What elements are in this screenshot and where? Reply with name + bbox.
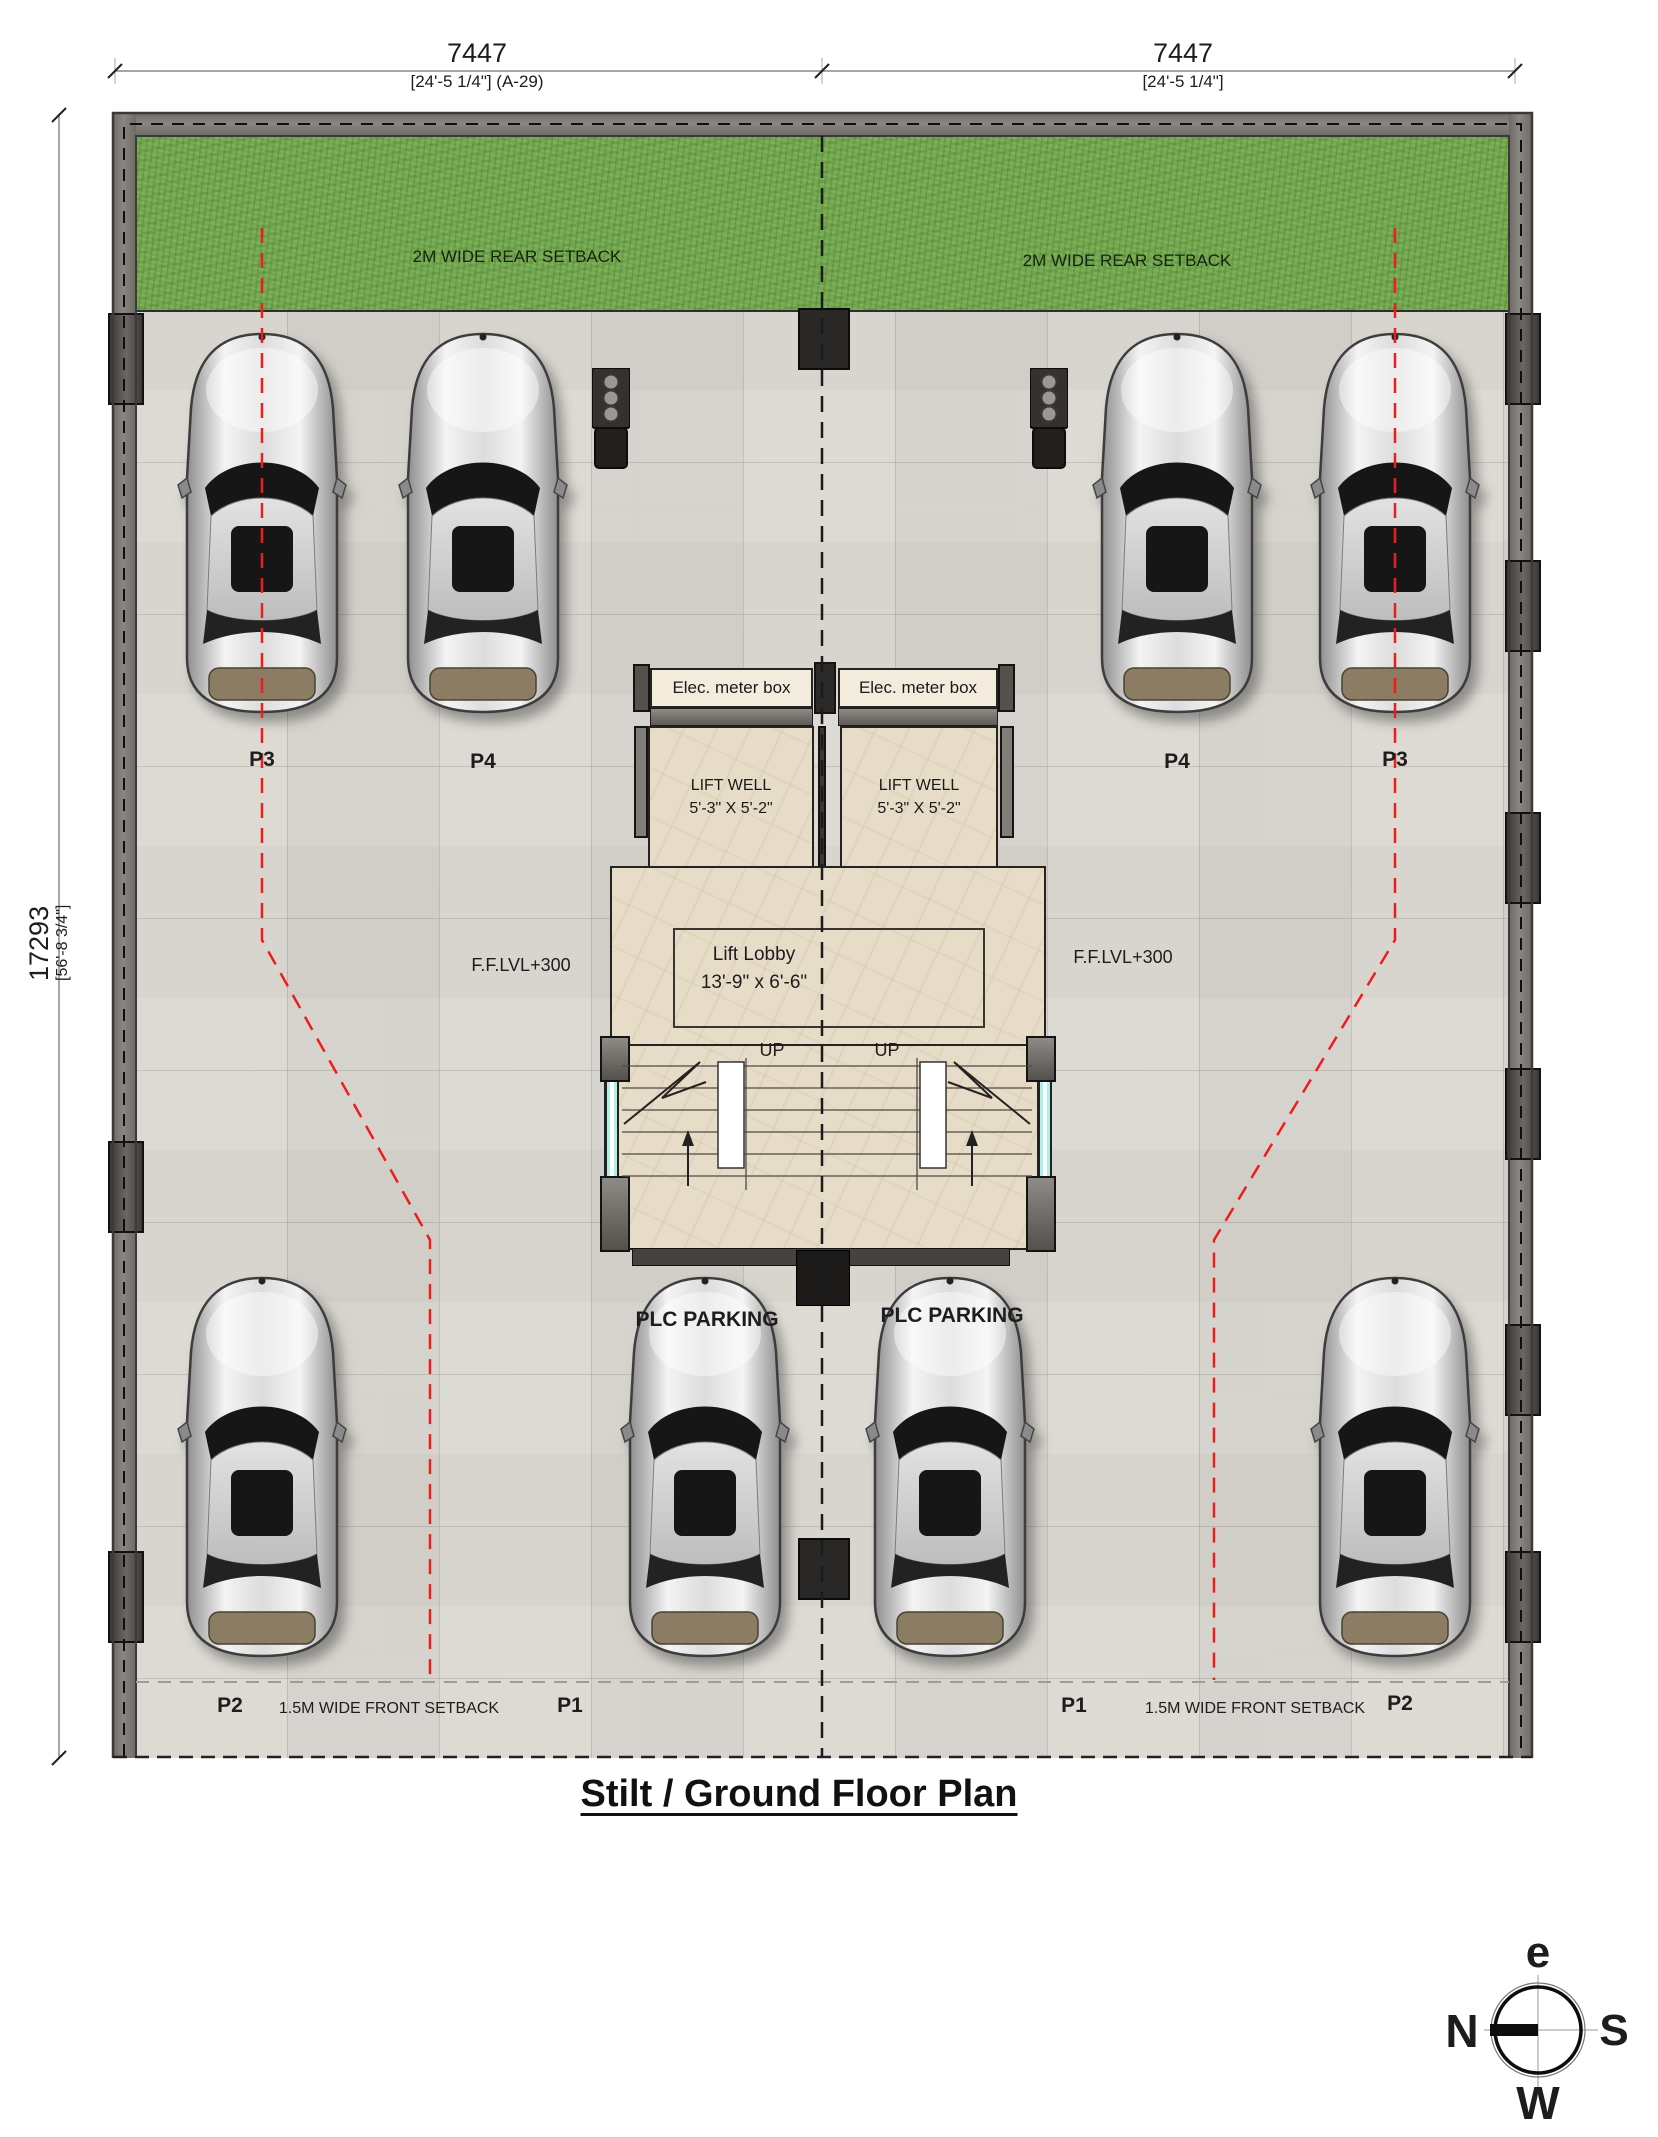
- core-gate-block: [796, 1250, 850, 1306]
- wall-cap: [998, 664, 1015, 712]
- dim-top-right-value: 7447: [1083, 38, 1283, 69]
- stair-window-glass: [604, 1078, 619, 1180]
- wall-cap: [814, 662, 836, 714]
- wall-cap: [633, 664, 650, 712]
- wall-column: [108, 1551, 144, 1643]
- front-setback-label-right: 1.5M WIDE FRONT SETBACK: [1130, 1700, 1380, 1718]
- parking-spot-label: P1: [1024, 1694, 1124, 1718]
- core-wall-band: [838, 708, 998, 726]
- rear-setback-label-right: 2M WIDE REAR SETBACK: [1017, 251, 1237, 271]
- parking-spot-label: P4: [1127, 750, 1227, 774]
- lift-well-size: 5'-3" X 5'-2": [689, 797, 772, 820]
- ffl-label-right: F.F.LVL+300: [1033, 947, 1213, 968]
- wall-pier: [634, 726, 648, 838]
- lobby-label: Lift Lobby: [654, 944, 854, 966]
- stair-window-glass: [1037, 1078, 1052, 1180]
- plc-parking-label-left: PLC PARKING: [607, 1308, 807, 1332]
- up-label-right: UP: [857, 1040, 917, 1061]
- elec-meter-box-right: Elec. meter box: [838, 668, 998, 708]
- core-column: [600, 1176, 630, 1252]
- wall-column: [108, 1141, 144, 1233]
- lift-well-size: 5'-3" X 5'-2": [877, 797, 960, 820]
- ffl-label-left: F.F.LVL+300: [431, 955, 611, 976]
- parking-spot-label: P2: [1350, 1692, 1450, 1716]
- gate-post: [798, 1538, 850, 1600]
- parking-spot-label: P3: [212, 748, 312, 772]
- lift-well-label: LIFT WELL: [691, 774, 772, 797]
- elec-meter-label: Elec. meter box: [859, 678, 977, 698]
- wall-column: [108, 313, 144, 405]
- floor-plan-sheet: Elec. meter box Elec. meter box LIFT WEL…: [0, 0, 1658, 2137]
- core-column: [1026, 1036, 1056, 1082]
- elec-meter-label: Elec. meter box: [672, 678, 790, 698]
- boundary-wall-top: [113, 113, 1532, 136]
- lift-well-right: LIFT WELL 5'-3" X 5'-2": [840, 726, 998, 868]
- gate-post: [798, 308, 850, 370]
- up-label-left: UP: [742, 1040, 802, 1061]
- elec-meter-box-left: Elec. meter box: [650, 668, 813, 708]
- dim-left-value: 17293: [24, 843, 54, 1043]
- lift-well-label: LIFT WELL: [879, 774, 960, 797]
- staircase: [610, 1044, 1046, 1250]
- core-column: [600, 1036, 630, 1082]
- wall-column: [1505, 1551, 1541, 1643]
- parking-spot-label: P2: [180, 1694, 280, 1718]
- wall-column: [1505, 313, 1541, 405]
- core-wall-band: [650, 708, 813, 726]
- lift-well-left: LIFT WELL 5'-3" X 5'-2": [648, 726, 814, 868]
- wall-pier: [818, 726, 826, 868]
- compass-letter-s: S: [1592, 2006, 1636, 2056]
- dim-top-right-detail: [24'-5 1/4"]: [1083, 72, 1283, 92]
- compass-letter-n: N: [1440, 2004, 1484, 2058]
- dim-left-detail: [56'-8 3/4"]: [54, 838, 76, 1048]
- parking-spot-label: P3: [1345, 748, 1445, 772]
- compass-letter-w: W: [1516, 2076, 1560, 2130]
- wall-column: [1505, 1324, 1541, 1416]
- wall-pier: [1000, 726, 1014, 838]
- wall-column: [1505, 560, 1541, 652]
- plc-parking-label-right: PLC PARKING: [852, 1304, 1052, 1328]
- front-setback-label-left: 1.5M WIDE FRONT SETBACK: [264, 1700, 514, 1718]
- wall-column: [1505, 1068, 1541, 1160]
- lobby-size: 13'-9" x 6'-6": [654, 972, 854, 994]
- parking-spot-label: P1: [520, 1694, 620, 1718]
- dim-top-left-value: 7447: [377, 38, 577, 69]
- rear-setback-lawn: [135, 133, 1510, 312]
- core-column: [1026, 1176, 1056, 1252]
- rear-setback-label-left: 2M WIDE REAR SETBACK: [407, 247, 627, 267]
- parking-spot-label: P4: [433, 750, 533, 774]
- wall-column: [1505, 812, 1541, 904]
- drawing-title: Stilt / Ground Floor Plan: [529, 1773, 1069, 1816]
- dim-top-left-detail: [24'-5 1/4"] (A-29): [352, 72, 602, 92]
- compass-letter-e: e: [1518, 1928, 1558, 1978]
